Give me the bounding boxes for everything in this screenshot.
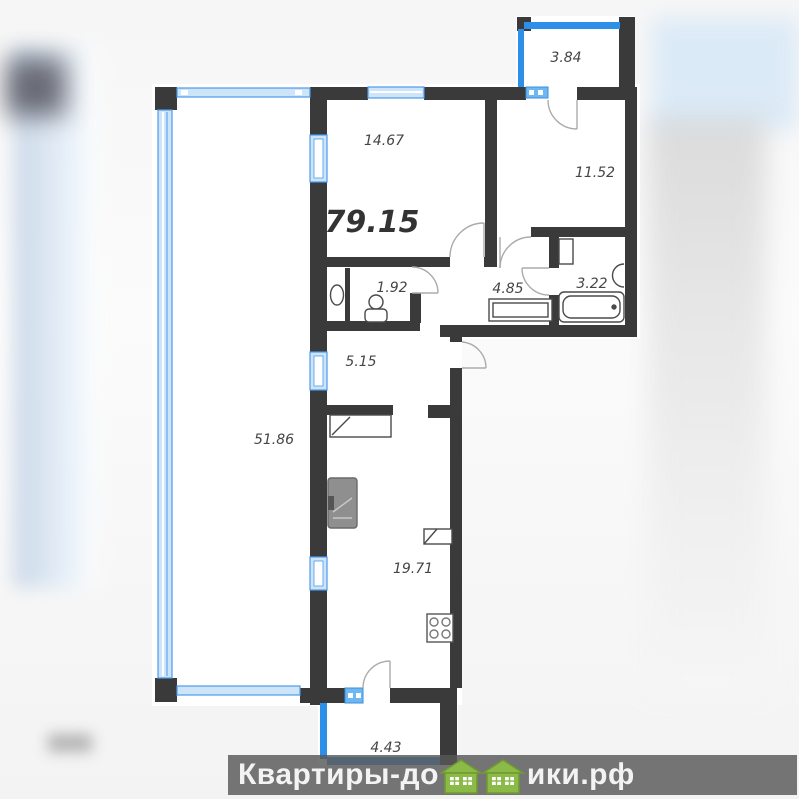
balcony-top-rail — [524, 22, 620, 29]
label-living-room: 14.67 — [364, 133, 404, 149]
glazing-dot — [181, 90, 188, 95]
wall-living-bedroom — [485, 100, 497, 257]
hall-closet-icon — [489, 299, 552, 321]
wall-living-bottom — [310, 257, 450, 267]
heater-icon — [328, 478, 357, 528]
apartment-footprint — [152, 16, 640, 765]
wall-top-2 — [424, 87, 526, 100]
label-hallway: 4.85 — [492, 281, 523, 297]
glazing-dot — [529, 90, 534, 95]
glazing-dot — [356, 693, 361, 698]
bathtub-icon — [559, 292, 624, 322]
window-pane — [314, 561, 323, 586]
wall-wc-bottom — [310, 321, 420, 331]
wall-terrace-corner-tl — [155, 87, 177, 110]
watermark-bar: Квартиры-до ики.рф — [228, 755, 797, 795]
terrace-glazing-top — [177, 88, 310, 97]
wall-door-pier — [484, 257, 497, 267]
green-houses-logo-icon — [440, 757, 526, 795]
wall-corridor-bottom — [327, 405, 393, 415]
window-pane — [314, 139, 323, 178]
glazing-dot — [295, 90, 302, 95]
label-terrace: 51.86 — [254, 432, 294, 448]
watermark-text-right: ики.рф — [527, 758, 635, 792]
bath-closet-icon — [559, 239, 573, 264]
wall-bath-partition-a — [549, 237, 559, 268]
wardrobe-icon — [330, 415, 391, 437]
balcony-bottom-rail-left — [320, 703, 327, 759]
wall-hall-bottom — [440, 325, 637, 337]
terrace-glazing-bottom — [177, 686, 300, 695]
label-bathroom: 3.22 — [576, 276, 607, 292]
wall-left-d — [310, 590, 327, 705]
label-bedroom: 11.52 — [575, 165, 615, 181]
label-wc: 1.92 — [376, 280, 407, 296]
wall-kitchen-bottom-a — [300, 688, 345, 703]
wall-right — [625, 87, 637, 337]
wall-wc-right — [410, 293, 421, 323]
wc-sink-icon — [331, 285, 344, 305]
wall-kitchen-bottom-b — [390, 688, 457, 703]
floorplan-svg: 3.84 14.67 79.15 11.52 1.92 4.85 3.22 5.… — [0, 0, 799, 799]
wall-terrace-corner-bl — [155, 678, 177, 702]
wall-wc-niche — [345, 268, 350, 321]
floorplan-page: 3.84 14.67 79.15 11.52 1.92 4.85 3.22 5.… — [0, 0, 799, 799]
wall-left-c — [310, 390, 327, 557]
watermark-text-left: Квартиры-до — [238, 758, 439, 792]
label-total-area: 79.15 — [325, 205, 420, 240]
window-pane — [314, 356, 323, 386]
wall-left-a — [310, 87, 327, 135]
label-balcony-top: 3.84 — [550, 50, 581, 66]
door-entrance — [462, 342, 486, 368]
stove-hob-icon — [427, 614, 453, 642]
wall-bedroom-bottom — [531, 227, 625, 237]
label-kitchen-living: 19.71 — [393, 561, 433, 577]
kitchen-shelf-icon — [424, 529, 452, 544]
glazing-dot — [538, 90, 543, 95]
label-balcony-bottom: 4.43 — [370, 740, 401, 756]
wall-kitchen-right-a — [450, 337, 462, 342]
glazing-dot — [348, 693, 353, 698]
balcony-top-rail-left — [518, 29, 524, 87]
terrace-glazing-left — [158, 110, 172, 678]
label-corridor: 5.15 — [345, 354, 376, 370]
